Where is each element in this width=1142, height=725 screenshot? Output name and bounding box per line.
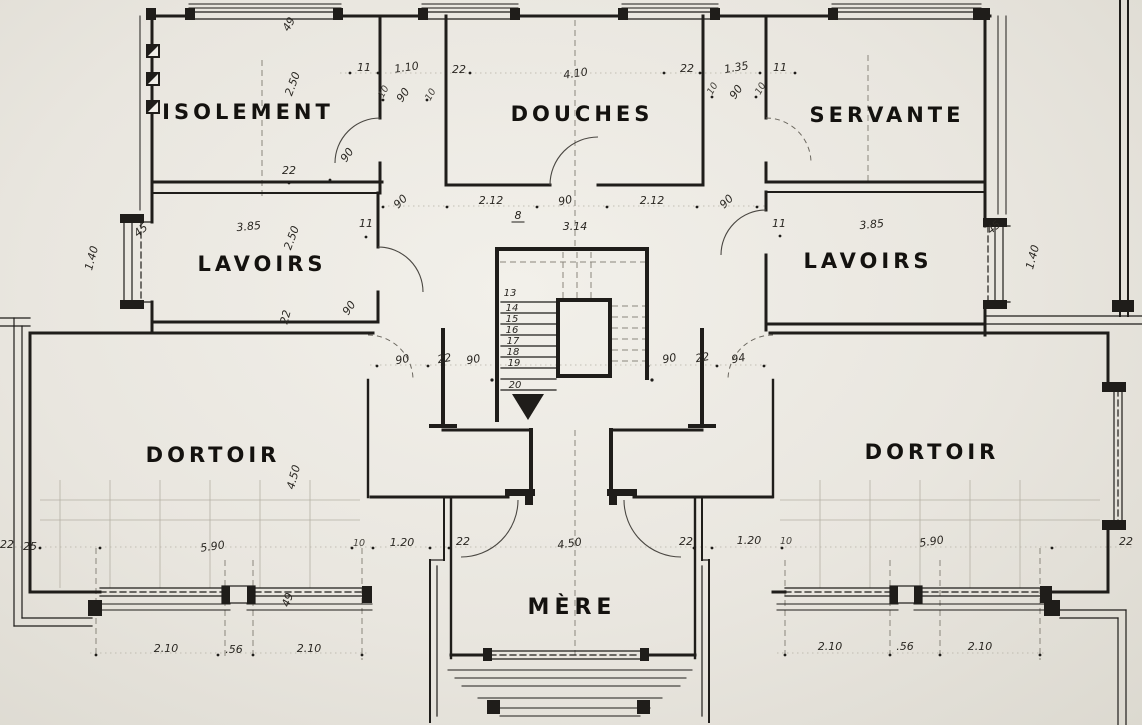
door-arcs xyxy=(335,118,811,557)
dim-label: 11 xyxy=(359,217,373,230)
dim-label: 2.10 xyxy=(968,640,993,653)
top-window-bays xyxy=(146,4,990,20)
dim-label: 90 xyxy=(465,352,481,367)
dim-label: 90 xyxy=(394,352,410,367)
entrance-porch xyxy=(448,670,692,716)
mere-window xyxy=(483,648,649,661)
door-arc-mere-left xyxy=(461,500,518,557)
dim-label: 22 xyxy=(282,164,296,177)
stair-step-number: 16 xyxy=(506,325,519,336)
door-arc-servante xyxy=(766,118,811,163)
room-label-douches: DOUCHES xyxy=(511,102,654,126)
room-label-dortoir-right: DORTOIR xyxy=(865,440,1000,464)
dim-label: 22 xyxy=(1119,535,1133,548)
dim-label: 10 xyxy=(376,84,392,100)
dim-label: 90 xyxy=(340,299,359,318)
floor-plan-drawing: 13 14 15 16 17 18 19 20 xyxy=(0,0,1142,725)
stair-step-number: 20 xyxy=(509,380,522,391)
dim-label: 2.12 xyxy=(640,194,665,207)
stair-upper-flight-dashed xyxy=(500,252,645,361)
dim-label: 2.10 xyxy=(818,640,843,653)
dim-label: 94 xyxy=(730,351,746,366)
dim-label: 2.10 xyxy=(297,642,322,655)
room-label-lavoirs-right: LAVOIRS xyxy=(803,249,932,273)
room-label-mere: MÈRE xyxy=(528,594,617,620)
dortoir-right-window xyxy=(1102,382,1126,530)
door-arc-lavoirs-left xyxy=(378,247,423,292)
dim-label: 22 xyxy=(694,350,710,365)
door-arc-douches xyxy=(550,137,598,185)
dim-label: 1.35 xyxy=(723,59,749,76)
dim-label: 2.50 xyxy=(281,224,302,251)
stair-step-number: 18 xyxy=(507,347,520,358)
dim-label: 22 xyxy=(456,535,470,548)
dim-label: 22 xyxy=(0,538,14,551)
stair-step-number: 19 xyxy=(508,358,521,369)
dim-label: 45 xyxy=(131,221,150,240)
room-label-isolement: ISOLEMENT xyxy=(162,100,334,124)
dim-label: 11 xyxy=(357,61,371,74)
dim-label: 4.50 xyxy=(284,464,303,491)
room-label-lavoirs-left: LAVOIRS xyxy=(197,252,326,276)
dim-label: 10 xyxy=(780,536,792,547)
stair-step-numbers: 13 14 15 16 17 18 19 20 xyxy=(504,288,522,391)
dim-label: 22 xyxy=(436,351,452,366)
dim-label: 22 xyxy=(680,62,694,75)
dim-label: 90 xyxy=(727,83,746,102)
room-label-servante: SERVANTE xyxy=(810,103,965,127)
dim-label: 1.20 xyxy=(390,536,415,549)
dim-label: 11 xyxy=(773,61,787,74)
dim-label: 22 xyxy=(452,63,466,76)
dim-label: 1.20 xyxy=(737,534,762,547)
dim-label: 3.14 xyxy=(563,220,588,233)
stair-step-number: 15 xyxy=(506,314,519,325)
dim-label: 90 xyxy=(338,146,357,165)
dortoir-right-windows xyxy=(777,586,1052,610)
dim-label: 2.12 xyxy=(479,194,504,207)
dim-label: 2.50 xyxy=(282,70,303,97)
room-label-dortoir-left: DORTOIR xyxy=(146,443,281,467)
dim-label: 10 xyxy=(423,87,439,103)
dim-label: .56 xyxy=(225,643,243,656)
stair-step-number: 13 xyxy=(504,288,517,299)
dim-label: 25 xyxy=(23,540,37,553)
dortoir-left-windows xyxy=(92,586,372,610)
stair-step-number: 17 xyxy=(507,336,520,347)
dim-label: 8 xyxy=(515,209,522,222)
dim-label: 49 xyxy=(280,15,298,34)
staircase: 13 14 15 16 17 18 19 20 xyxy=(497,249,647,420)
dim-label: 5.90 xyxy=(199,538,225,554)
vent-squares xyxy=(146,44,160,114)
dim-label: 4.50 xyxy=(556,535,582,551)
dim-label: 10 xyxy=(705,81,721,97)
stair-step-number: 14 xyxy=(506,303,519,314)
dim-label: 22 xyxy=(679,535,693,548)
dim-label: 90 xyxy=(394,86,413,105)
blueprint-page: 13 14 15 16 17 18 19 20 xyxy=(0,0,1142,725)
dim-label: 1.40 xyxy=(82,245,101,272)
dim-label: 3.85 xyxy=(859,217,885,232)
dim-label: 90 xyxy=(391,192,410,211)
dim-label: 90 xyxy=(717,192,736,211)
dimension-ticks xyxy=(39,72,1110,657)
dim-label: 11 xyxy=(772,217,786,230)
dim-label: 90 xyxy=(661,351,677,366)
dim-label: 49 xyxy=(279,591,296,609)
entrance-door-posts xyxy=(505,489,637,505)
stair-direction-arrow xyxy=(512,394,544,420)
dim-label: .56 xyxy=(896,640,914,653)
dim-label: 2.10 xyxy=(154,642,179,655)
door-arc-mere-right xyxy=(624,500,681,557)
door-arc-lavoirs-right xyxy=(721,210,766,255)
dim-label: 10 xyxy=(353,538,365,549)
dim-label: 1.40 xyxy=(1023,244,1042,271)
dim-label: 3.85 xyxy=(236,219,262,234)
dim-label: 4.10 xyxy=(562,65,588,81)
dim-label: 90 xyxy=(557,193,573,209)
